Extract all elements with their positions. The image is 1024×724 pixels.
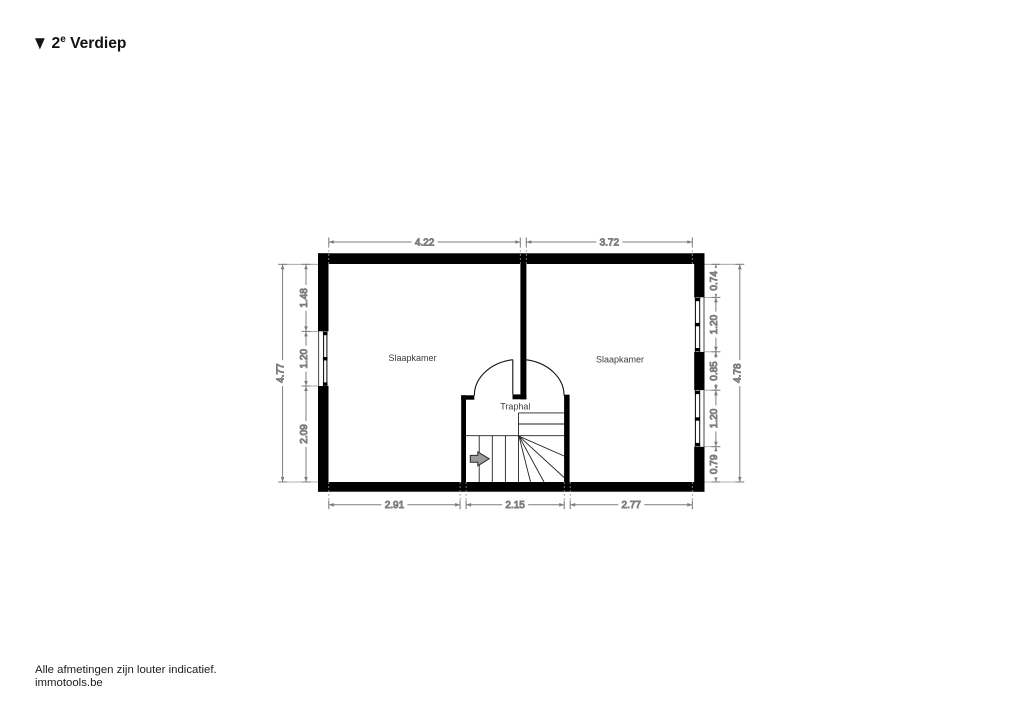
svg-text:1.48: 1.48 [299, 288, 310, 308]
svg-text:0.74: 0.74 [709, 271, 720, 291]
svg-text:Slaapkamer: Slaapkamer [388, 353, 436, 363]
svg-text:2.77: 2.77 [622, 500, 642, 511]
svg-text:Traphal: Traphal [500, 402, 530, 412]
svg-text:1.20: 1.20 [709, 408, 720, 428]
svg-text:1.20: 1.20 [709, 314, 720, 334]
svg-text:1.20: 1.20 [299, 349, 310, 369]
svg-text:Slaapkamer: Slaapkamer [596, 355, 644, 365]
svg-text:3.72: 3.72 [600, 237, 620, 248]
svg-text:2.91: 2.91 [385, 500, 405, 511]
svg-text:0.79: 0.79 [709, 454, 720, 474]
svg-text:2.09: 2.09 [299, 424, 310, 444]
svg-text:4.77: 4.77 [276, 363, 287, 383]
svg-text:4.78: 4.78 [733, 363, 744, 383]
svg-text:4.22: 4.22 [415, 237, 435, 248]
svg-text:0.85: 0.85 [709, 361, 720, 381]
svg-text:2.15: 2.15 [505, 500, 525, 511]
